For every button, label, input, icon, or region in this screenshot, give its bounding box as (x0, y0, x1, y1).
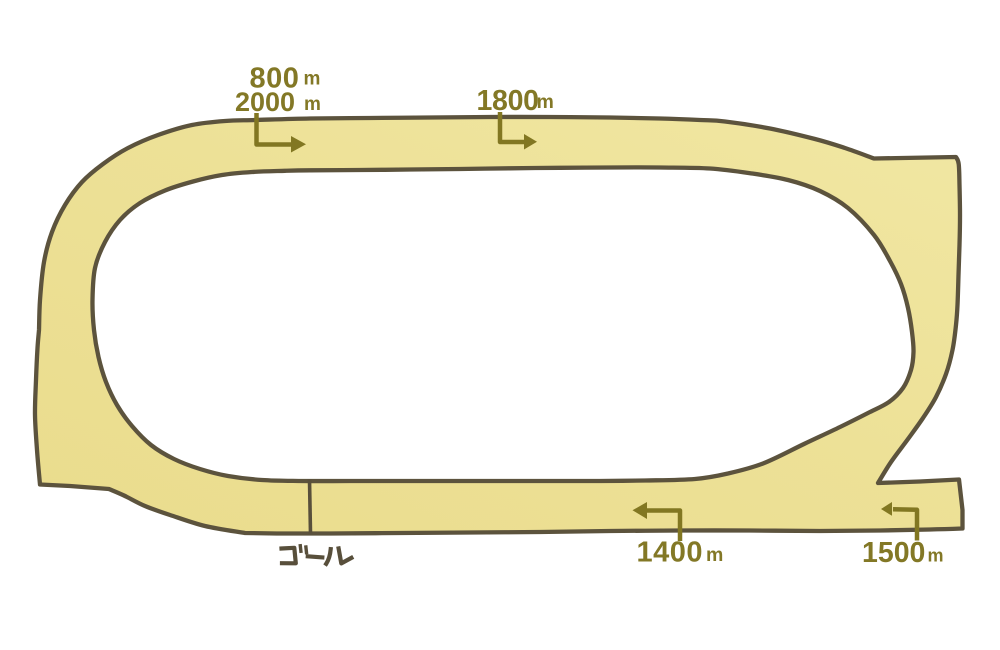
svg-text:m: m (928, 546, 944, 566)
svg-text:2000: 2000 (235, 87, 295, 117)
svg-text:m: m (304, 94, 321, 115)
svg-text:1800: 1800 (477, 85, 539, 117)
svg-text:1500: 1500 (862, 537, 925, 569)
svg-text:m: m (706, 544, 723, 566)
svg-text:1400: 1400 (637, 537, 704, 569)
svg-text:m: m (537, 91, 554, 113)
svg-text:m: m (304, 69, 321, 90)
